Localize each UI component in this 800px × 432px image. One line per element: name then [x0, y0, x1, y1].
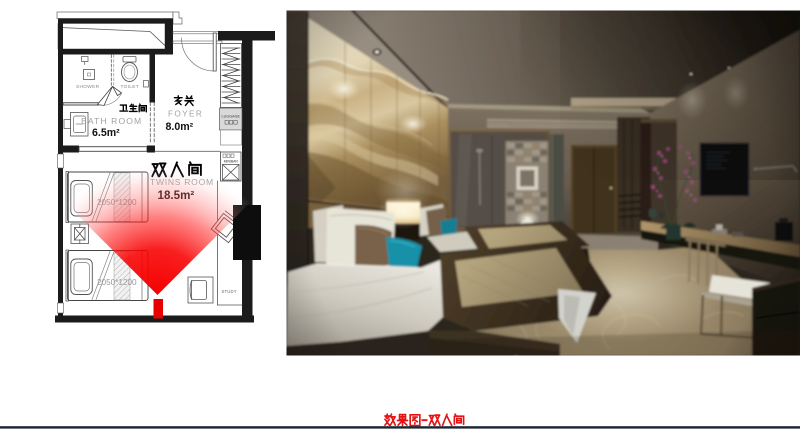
svg-text:SHOWER: SHOWER — [76, 84, 100, 90]
svg-text:STUDY: STUDY — [222, 289, 237, 294]
svg-text:BATH ROOM: BATH ROOM — [81, 116, 142, 126]
svg-text:MINIBAR: MINIBAR — [224, 160, 239, 164]
svg-text:FOYER: FOYER — [168, 110, 203, 119]
svg-text:2050*1200: 2050*1200 — [97, 278, 137, 287]
svg-text:LUGGAGE: LUGGAGE — [222, 115, 241, 119]
svg-text:6.5m²: 6.5m² — [92, 127, 120, 139]
svg-text:TOILET: TOILET — [121, 84, 140, 90]
svg-text:8.0m²: 8.0m² — [166, 121, 194, 133]
